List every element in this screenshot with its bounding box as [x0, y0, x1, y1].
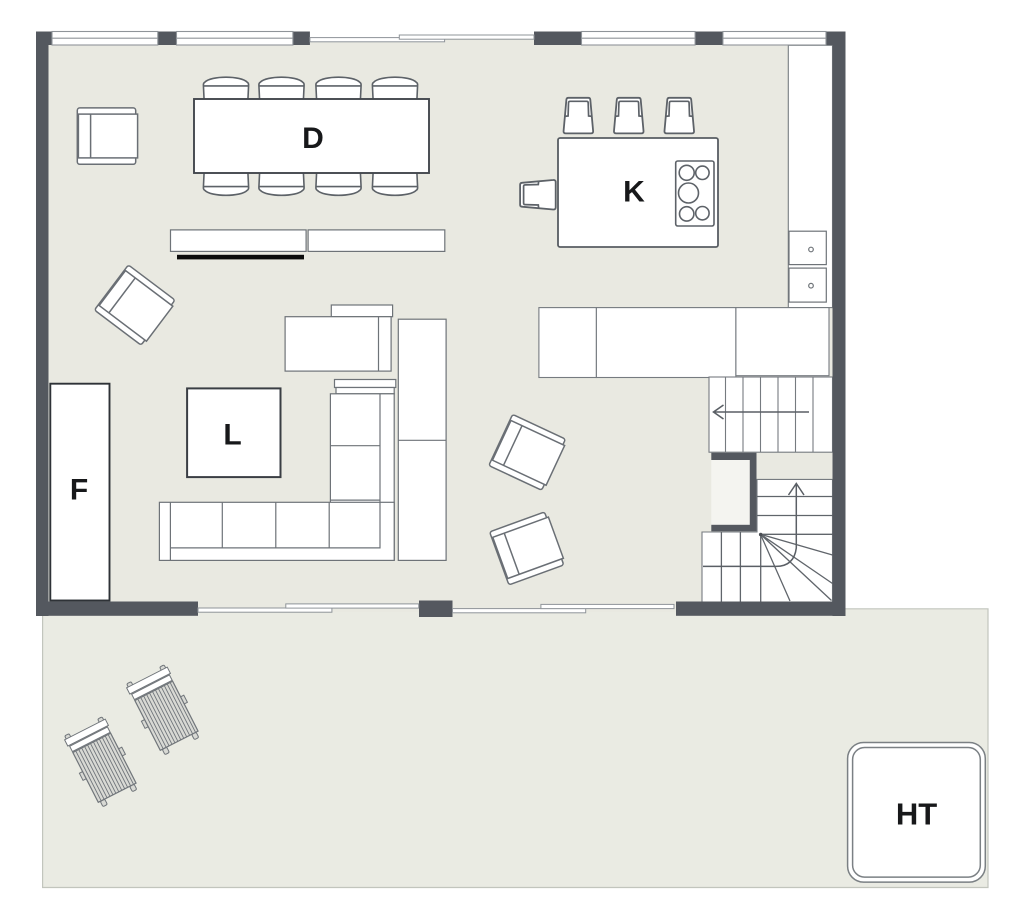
svg-text:F: F	[70, 474, 88, 507]
svg-text:K: K	[623, 175, 645, 208]
svg-text:L: L	[223, 419, 241, 452]
svg-text:D: D	[302, 122, 324, 155]
svg-text:HT: HT	[896, 797, 937, 832]
